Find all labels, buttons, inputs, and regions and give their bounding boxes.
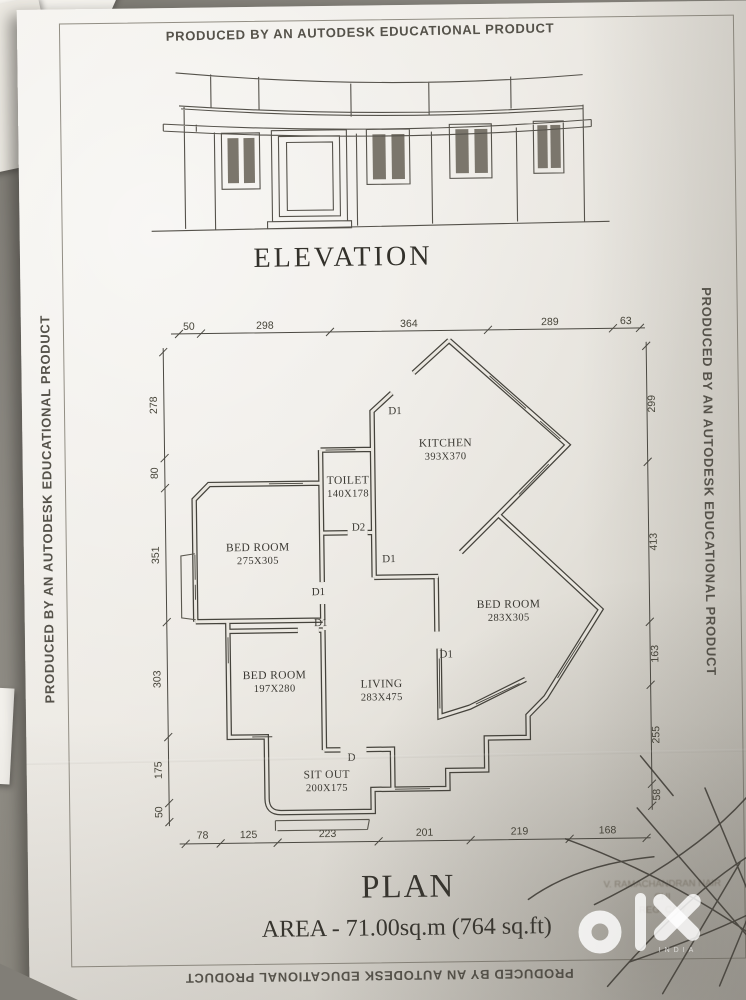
photo-of-house-plan: PRODUCED BY AN AUTODESK EDUCATIONAL PROD… — [0, 0, 746, 1000]
olx-watermark: INDIA — [552, 868, 746, 994]
olx-india-text: INDIA — [659, 947, 698, 954]
olx-x-icon — [650, 891, 704, 944]
olx-o-icon — [585, 917, 615, 947]
olx-l-icon — [635, 893, 646, 951]
drawing-sheet: PRODUCED BY AN AUTODESK EDUCATIONAL PROD… — [17, 0, 746, 1000]
pen-scribbles — [17, 0, 746, 1000]
